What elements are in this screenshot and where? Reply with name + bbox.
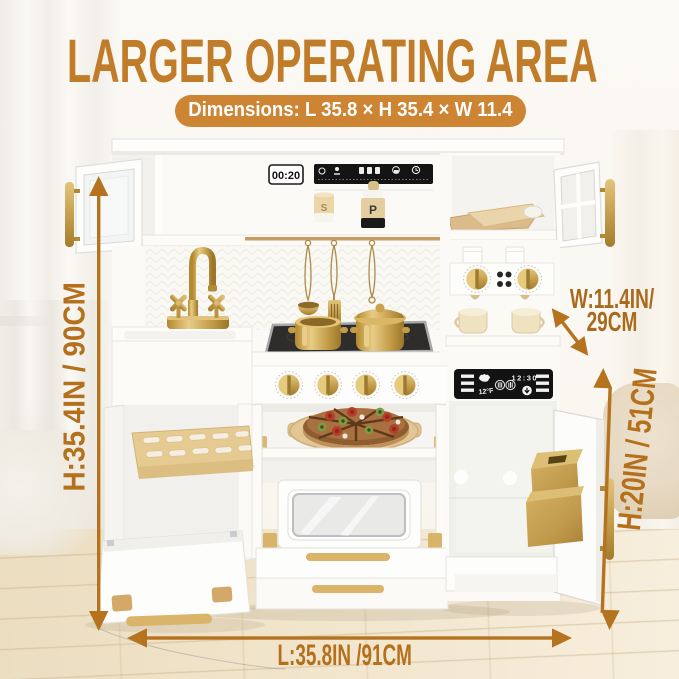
svg-text:12:30: 12:30 xyxy=(512,374,537,383)
svg-text:P: P xyxy=(369,203,377,217)
svg-text:12°F: 12°F xyxy=(478,387,494,397)
svg-text:S: S xyxy=(321,203,328,214)
svg-text:00:20: 00:20 xyxy=(272,170,300,182)
